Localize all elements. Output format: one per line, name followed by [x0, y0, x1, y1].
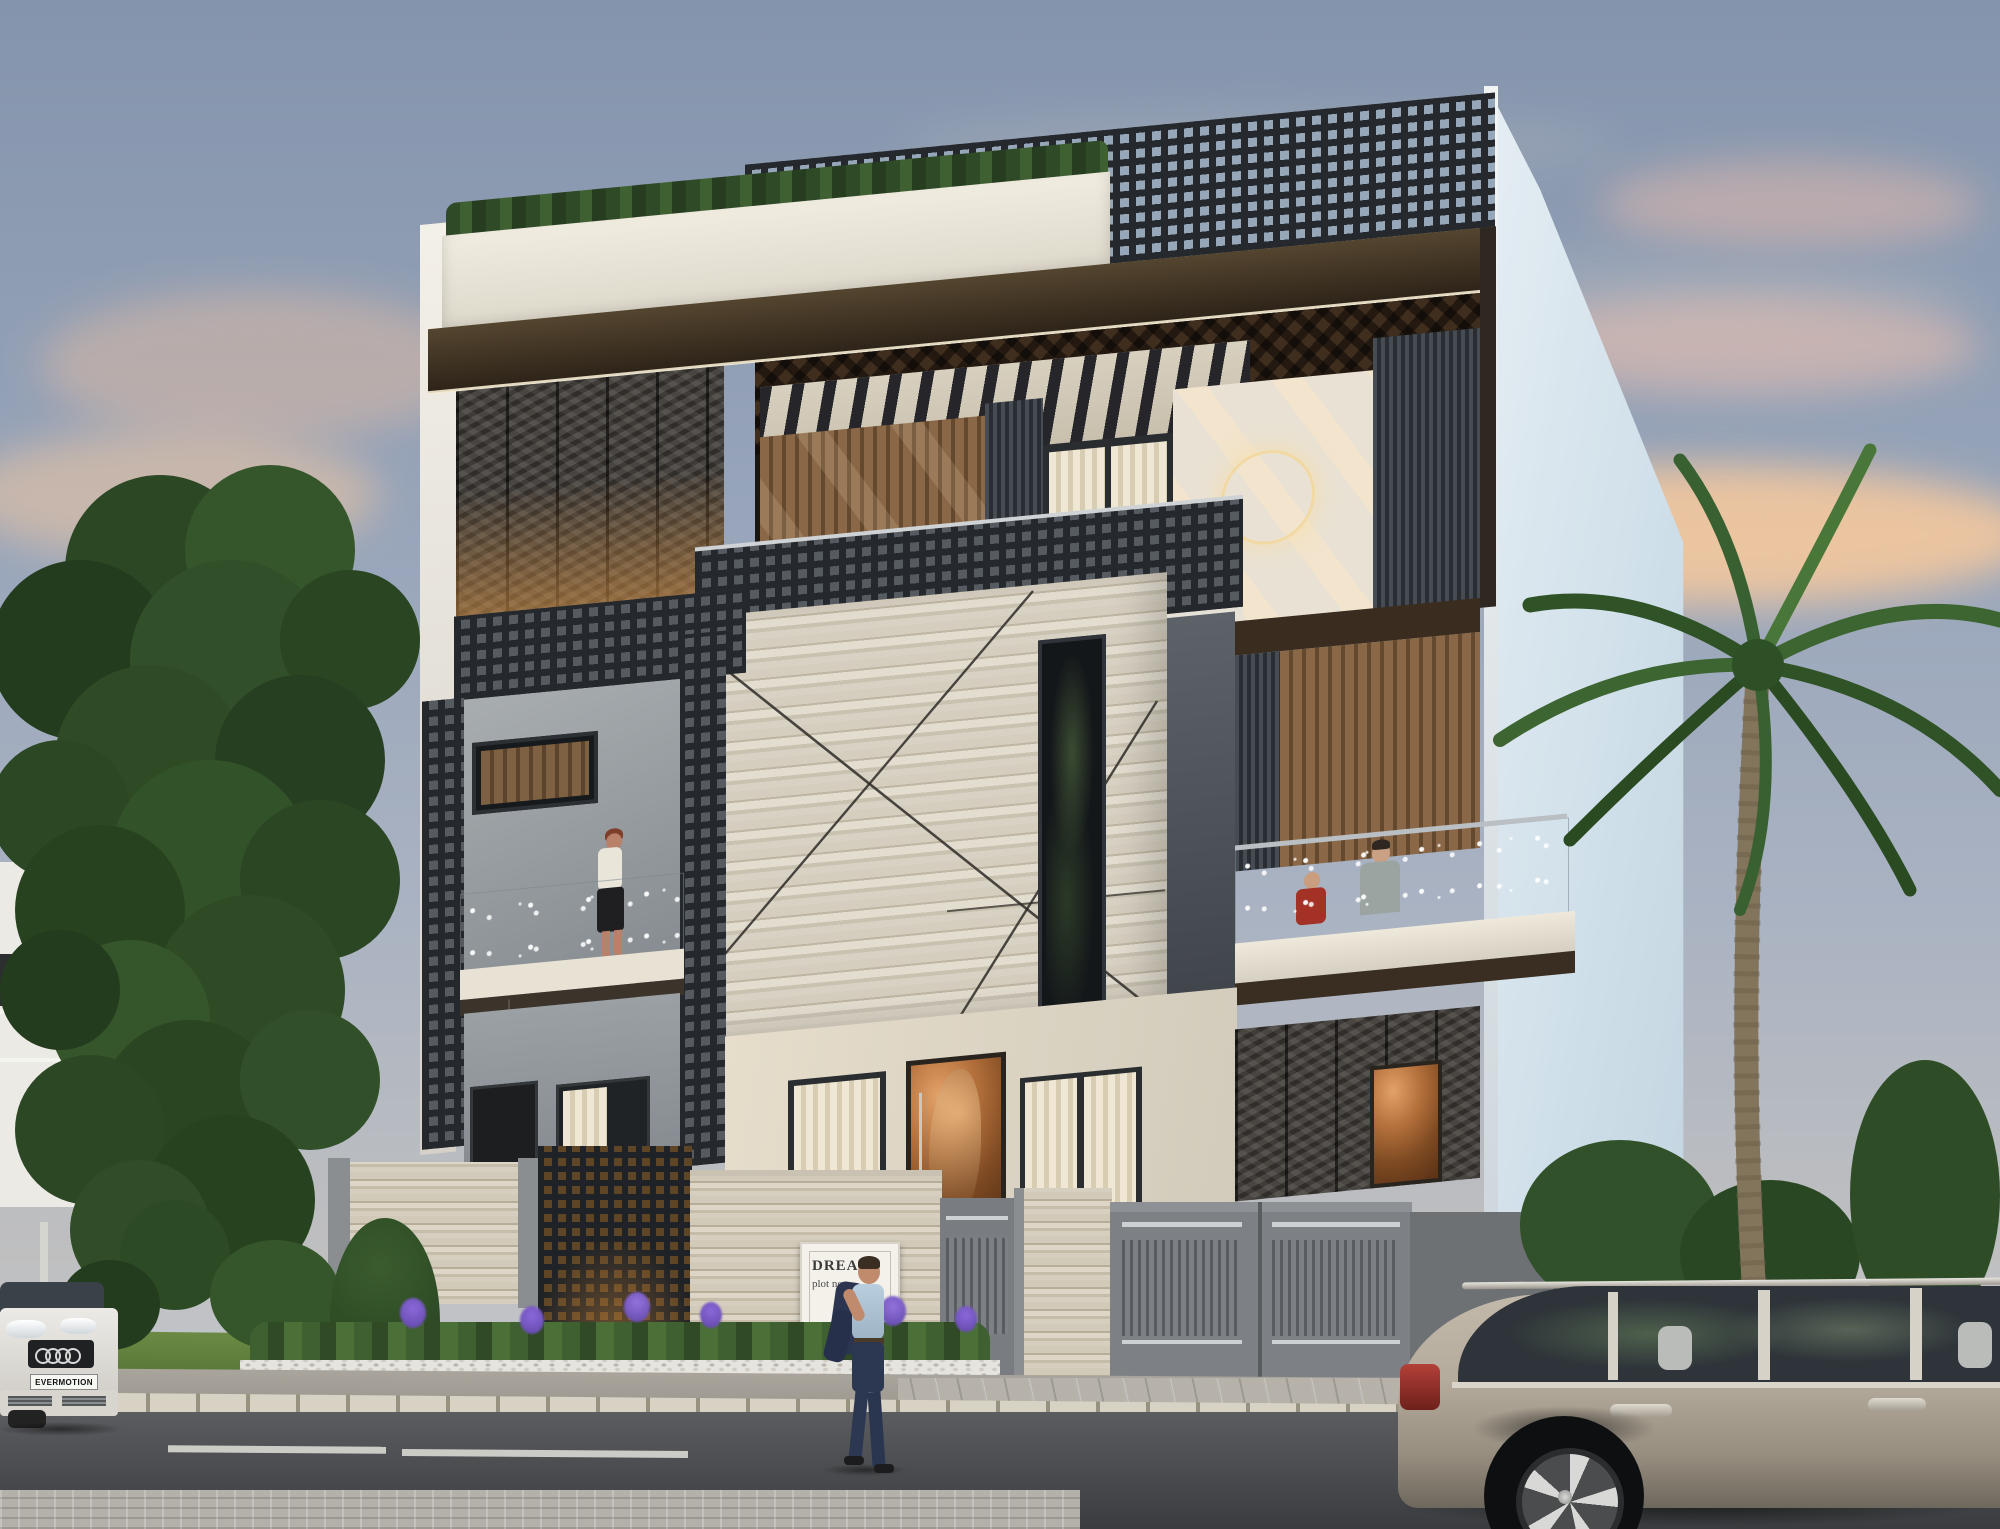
iris-flower-3: [624, 1292, 650, 1322]
cloud-pink-1: [1600, 160, 1980, 250]
left-car-vent-l: [8, 1396, 52, 1406]
narrow-window-tree-reflection: [1046, 643, 1098, 1012]
audi-ring-4: [65, 1348, 81, 1364]
balcony-charcoal-panel: [1235, 651, 1280, 871]
right-car-cpillar: [1758, 1290, 1770, 1380]
gate-pillar-travertine: [1014, 1188, 1112, 1390]
jali-column-right: [678, 631, 726, 1168]
lane-dash-1: [168, 1445, 386, 1454]
driveway-gate-accent-l2: [1122, 1340, 1242, 1344]
driveway-gate: [1110, 1202, 1412, 1392]
left-car-vent-r: [62, 1396, 106, 1406]
right-car-bpillar: [1608, 1292, 1618, 1380]
right-car-handle-front: [1868, 1398, 1926, 1411]
left-car: EVERMOTION: [0, 1282, 122, 1434]
slit-window-wood-louvers: [481, 741, 589, 805]
left-car-license-plate: EVERMOTION: [30, 1374, 98, 1390]
slit-window: [472, 731, 598, 815]
right-car-wheel-cap: [1558, 1490, 1572, 1504]
dark-marble-return: [1167, 612, 1235, 1021]
right-car-dpillar: [1910, 1288, 1922, 1380]
driveway-gate-accent-r2: [1272, 1340, 1400, 1344]
travertine-volume: [695, 572, 1167, 1065]
cloud-left-1: [40, 290, 480, 440]
right-car: [1392, 1278, 2000, 1529]
man-leg-left: [848, 1390, 868, 1461]
entrance-copper-door: [1370, 1060, 1442, 1189]
iris-flower-6: [955, 1306, 977, 1332]
man-shoe-left: [844, 1456, 864, 1465]
left-car-headlight-left: [6, 1320, 46, 1338]
gate-pillar-edge: [1014, 1188, 1024, 1390]
iris-flower-4: [700, 1302, 722, 1328]
right-car-greenhouse: [1458, 1286, 2000, 1382]
foreground-paver-strip: [0, 1490, 1080, 1529]
right-car-headrest-2: [1958, 1322, 1992, 1368]
right-car-headrest-1: [1658, 1326, 1692, 1370]
left-car-headlight-right: [60, 1318, 96, 1334]
iris-flower-2: [520, 1306, 544, 1334]
right-car-beltline: [1452, 1382, 2000, 1388]
driveway-gate-ribs-l: [1122, 1240, 1242, 1336]
driveway-gate-accent-r: [1272, 1222, 1400, 1227]
license-plate-text: EVERMOTION: [35, 1378, 93, 1387]
driveway-gate-accent-l: [1122, 1222, 1242, 1227]
man-leg-right: [867, 1392, 885, 1467]
boundary-pillar-b: [518, 1158, 540, 1308]
driveway-gate-seam: [1258, 1202, 1262, 1392]
left-car-grille: [28, 1340, 94, 1368]
narrow-window: [1038, 634, 1106, 1021]
driveway-gate-ribs-r: [1272, 1240, 1400, 1336]
iris-flower-1: [400, 1298, 426, 1328]
left-car-shadow: [0, 1422, 124, 1436]
scene: DREAM plot no-: [0, 0, 2000, 1529]
man-shadow: [822, 1464, 908, 1476]
walking-man: [828, 1252, 912, 1478]
man-trousers: [852, 1342, 884, 1392]
stone-wall-uplight-glow: [456, 366, 724, 620]
man-shoe-right: [874, 1464, 894, 1473]
rough-stone-upper-wall: [456, 366, 724, 620]
palm-tree: [1440, 370, 2000, 1370]
man-hair: [858, 1256, 880, 1269]
pedestrian-gate-accent: [946, 1216, 1008, 1220]
right-car-window-reflection: [1498, 1292, 2000, 1376]
right-car-taillight: [1400, 1364, 1440, 1410]
entrance-copper-panel: [1374, 1064, 1438, 1184]
